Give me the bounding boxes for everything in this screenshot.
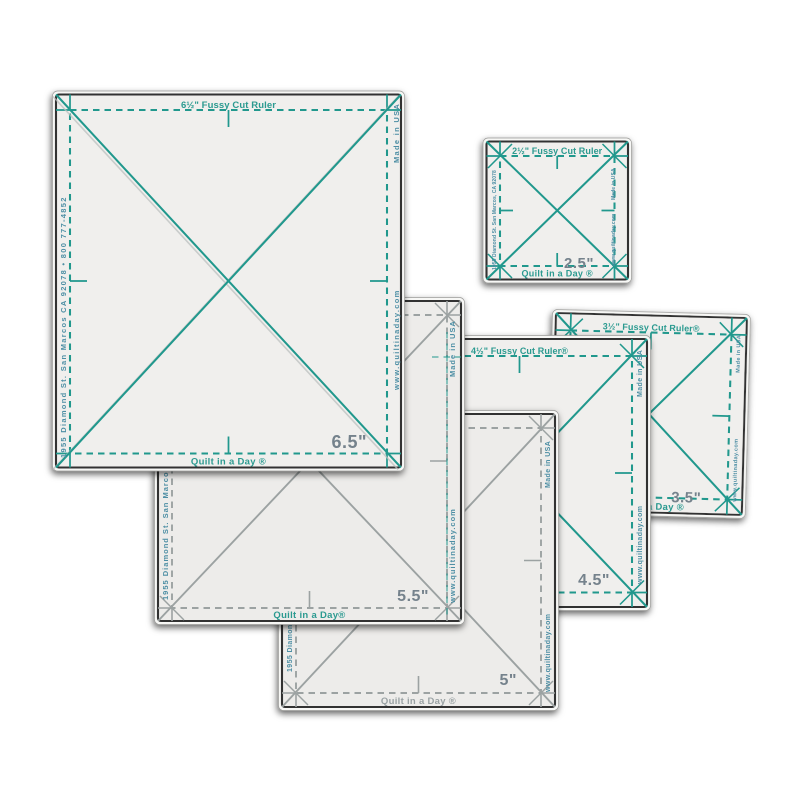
svg-text:1955 Diamond St. San Marcos,: 1955 Diamond St. San Marcos, CA 92078 [492, 170, 498, 270]
svg-text:Made in USA: Made in USA [637, 350, 644, 397]
svg-text:www.quiltinaday.com: www.quiltinaday.com [637, 506, 644, 585]
svg-text:2.5": 2.5" [564, 255, 594, 272]
svg-text:4½" Fussy Cut Ruler®: 4½" Fussy Cut Ruler® [471, 346, 568, 356]
svg-text:4.5": 4.5" [578, 572, 610, 589]
svg-text:www.quiltinaday.com: www.quiltinaday.com [448, 508, 457, 604]
svg-text:Made in USA: Made in USA [448, 320, 457, 377]
svg-text:1955 Diamond St. San Marcos: 1955 Diamond St. San Marcos CA 92078 • 8… [59, 196, 68, 458]
svg-text:www.quiltinaday.com: www.quiltinaday.com [392, 289, 401, 391]
svg-text:Made in USA: Made in USA [735, 335, 742, 373]
svg-text:www.quiltinaday.com: www.quiltinaday.com [545, 614, 552, 693]
svg-text:www.quiltinaday.com: www.quiltinaday.com [611, 213, 617, 267]
svg-text:3.5": 3.5" [671, 489, 701, 507]
svg-text:6½" Fussy Cut Ruler: 6½" Fussy Cut Ruler [181, 100, 276, 111]
svg-text:Quilt in a Day®: Quilt in a Day® [273, 610, 345, 621]
svg-text:5": 5" [500, 672, 517, 689]
svg-text:6.5": 6.5" [331, 432, 367, 452]
svg-text:Quilt in a Day ®: Quilt in a Day ® [191, 457, 266, 468]
svg-text:Quilt in a Day ®: Quilt in a Day ® [381, 696, 456, 707]
svg-text:Made in USA: Made in USA [392, 103, 401, 163]
svg-text:Made in USA: Made in USA [545, 441, 552, 488]
svg-text:5.5": 5.5" [397, 588, 429, 605]
svg-text:Made in USA: Made in USA [611, 168, 617, 200]
svg-text:2½" Fussy Cut Ruler: 2½" Fussy Cut Ruler [512, 146, 603, 156]
